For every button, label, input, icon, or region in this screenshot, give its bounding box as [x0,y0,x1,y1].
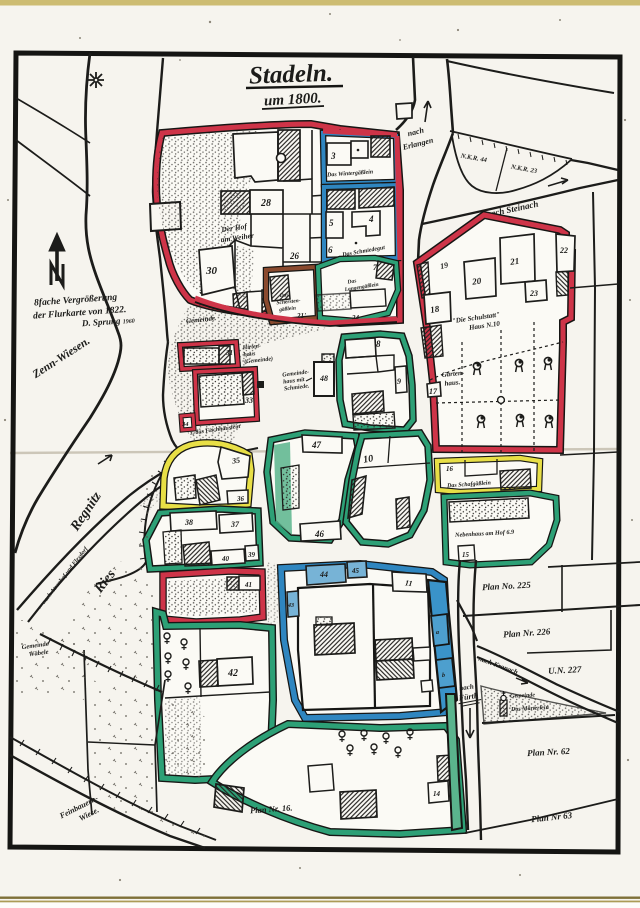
svg-text:46: 46 [314,529,325,539]
svg-text:28: 28 [260,198,271,209]
svg-text:37: 37 [230,520,240,529]
svg-text:5: 5 [329,218,334,228]
svg-text:6: 6 [328,245,333,255]
svg-text:haus.: haus. [444,378,461,388]
svg-text:22: 22 [559,246,568,255]
svg-text:42: 42 [227,668,238,679]
svg-text:Das: Das [278,292,288,299]
svg-text:21: 21 [509,256,520,267]
svg-text:9: 9 [397,377,401,386]
svg-text:31: 31 [225,349,233,357]
svg-text:11: 11 [404,578,413,588]
svg-text:23: 23 [529,289,538,298]
svg-text:35: 35 [231,456,241,466]
svg-text:48: 48 [319,374,328,383]
svg-text:26: 26 [289,251,300,261]
svg-text:39: 39 [247,551,256,559]
svg-text:40: 40 [221,555,230,563]
svg-text:10: 10 [362,453,374,466]
svg-text:34: 34 [181,421,189,428]
svg-text:41: 41 [244,581,252,589]
svg-text:33: 33 [244,396,253,405]
svg-text:30: 30 [205,265,218,277]
svg-text:U.N. 227: U.N. 227 [548,664,582,676]
svg-text:45: 45 [351,567,360,575]
svg-text:36: 36 [236,495,245,503]
svg-text:14: 14 [433,790,441,798]
svg-text:Stadeln.: Stadeln. [249,60,334,90]
svg-text:b: b [442,673,445,679]
svg-text:44: 44 [319,570,328,579]
svg-text:15: 15 [462,551,470,559]
svg-text:38: 38 [184,518,193,527]
svg-text:43: 43 [287,603,294,609]
svg-text:20: 20 [471,276,483,287]
svg-text:a: a [436,630,439,636]
svg-text:3: 3 [330,151,336,161]
svg-text:8: 8 [376,339,381,349]
svg-text:47: 47 [311,440,322,450]
svg-text:16: 16 [446,465,454,473]
svg-text:4: 4 [368,214,374,224]
svg-text:17: 17 [429,387,438,396]
